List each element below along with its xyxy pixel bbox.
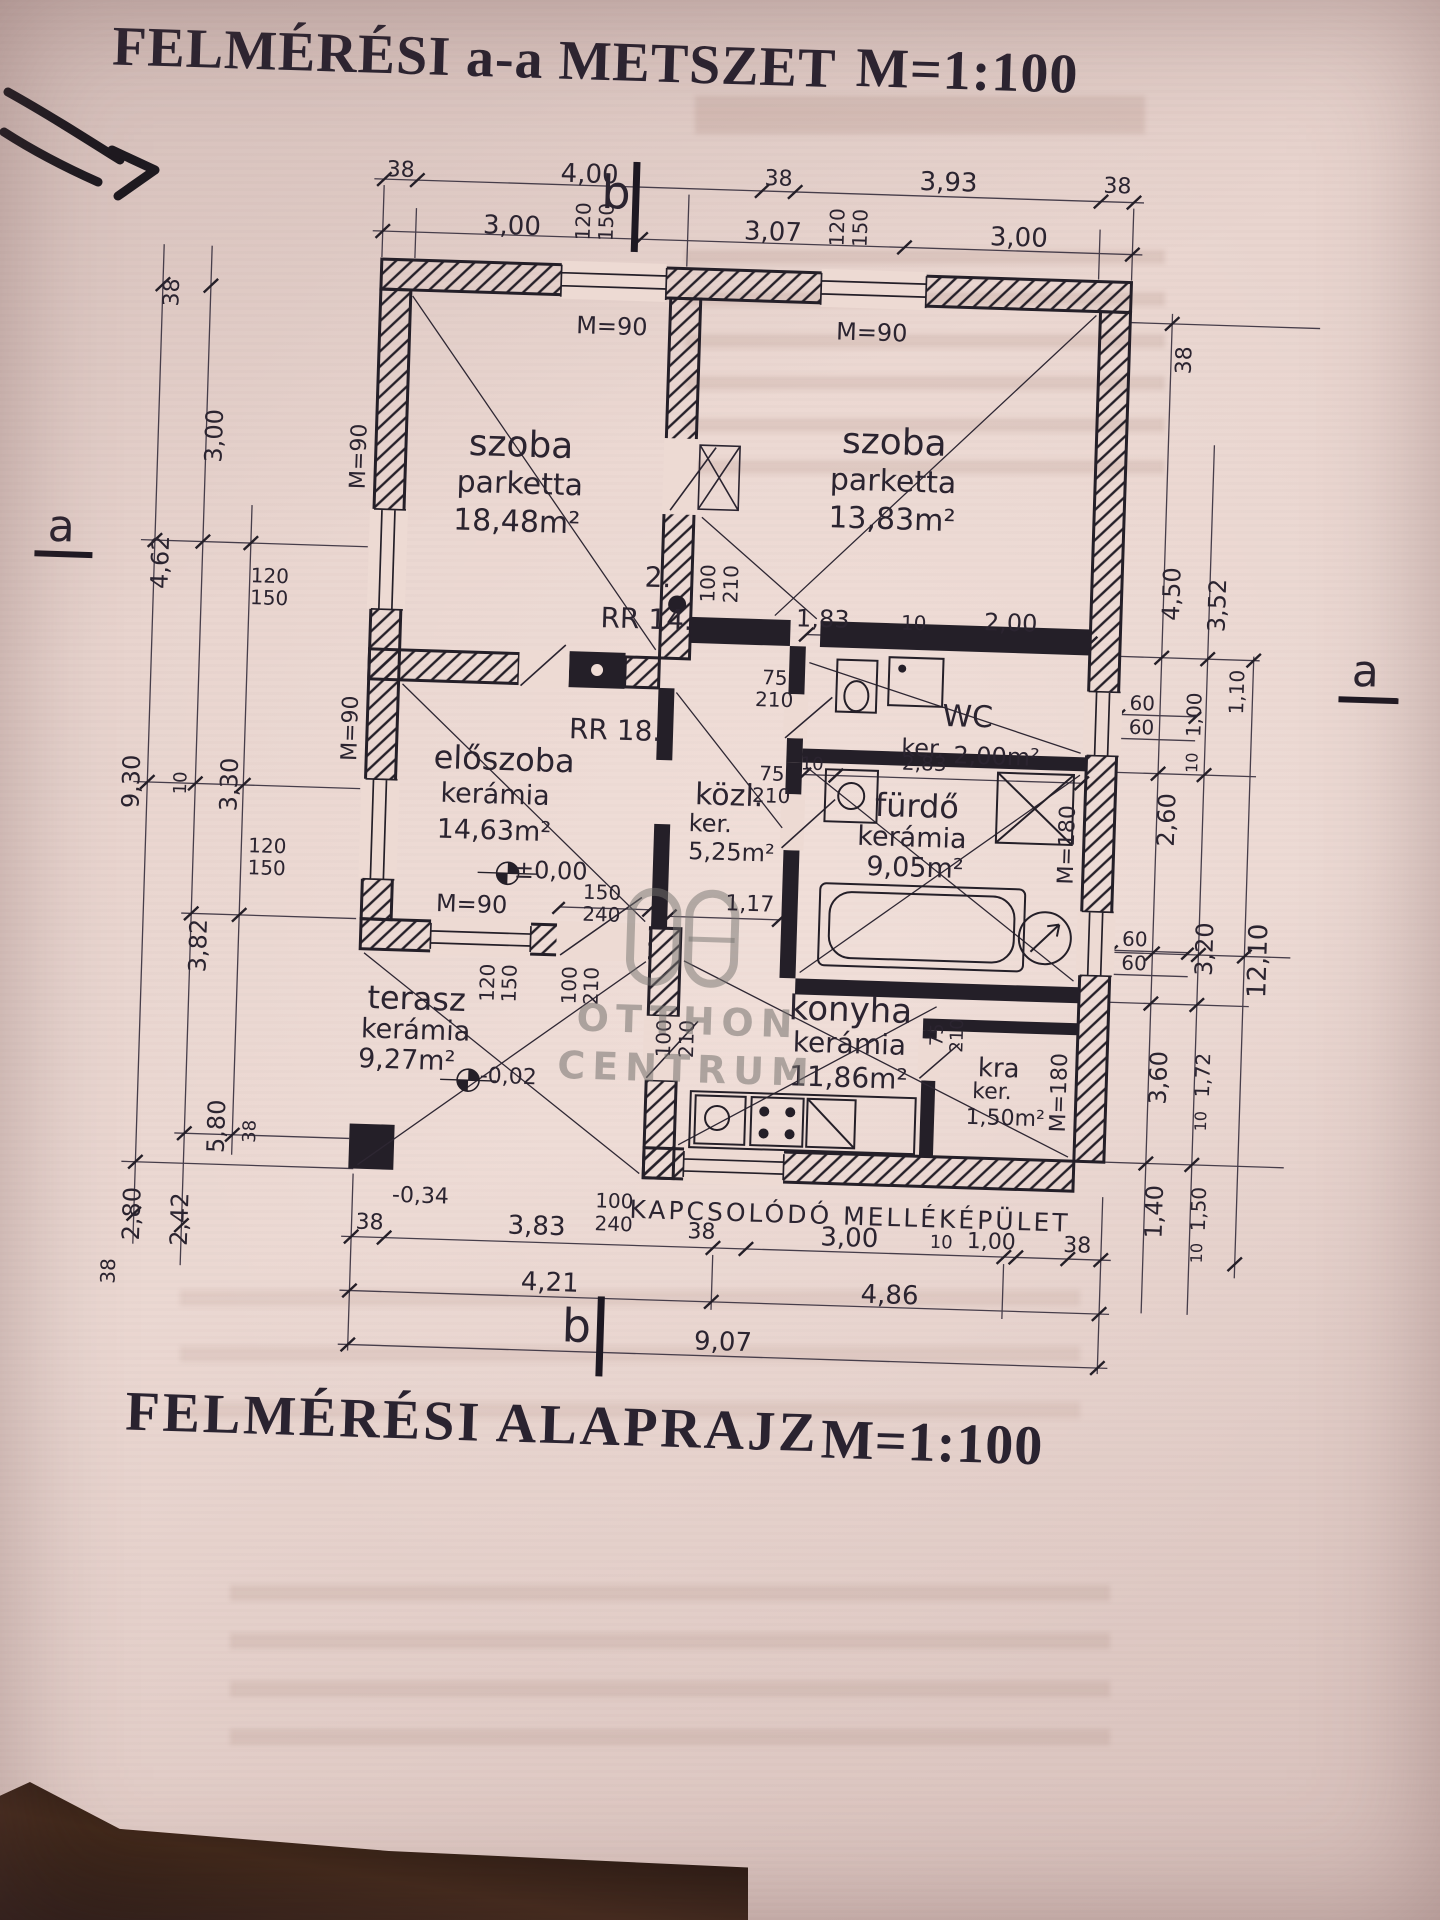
photo-vignette	[0, 0, 1440, 1920]
floor-plan-photo: FELMÉRÉSI a-a METSZET M=1:100 FELMÉRÉSI …	[0, 0, 1440, 1920]
